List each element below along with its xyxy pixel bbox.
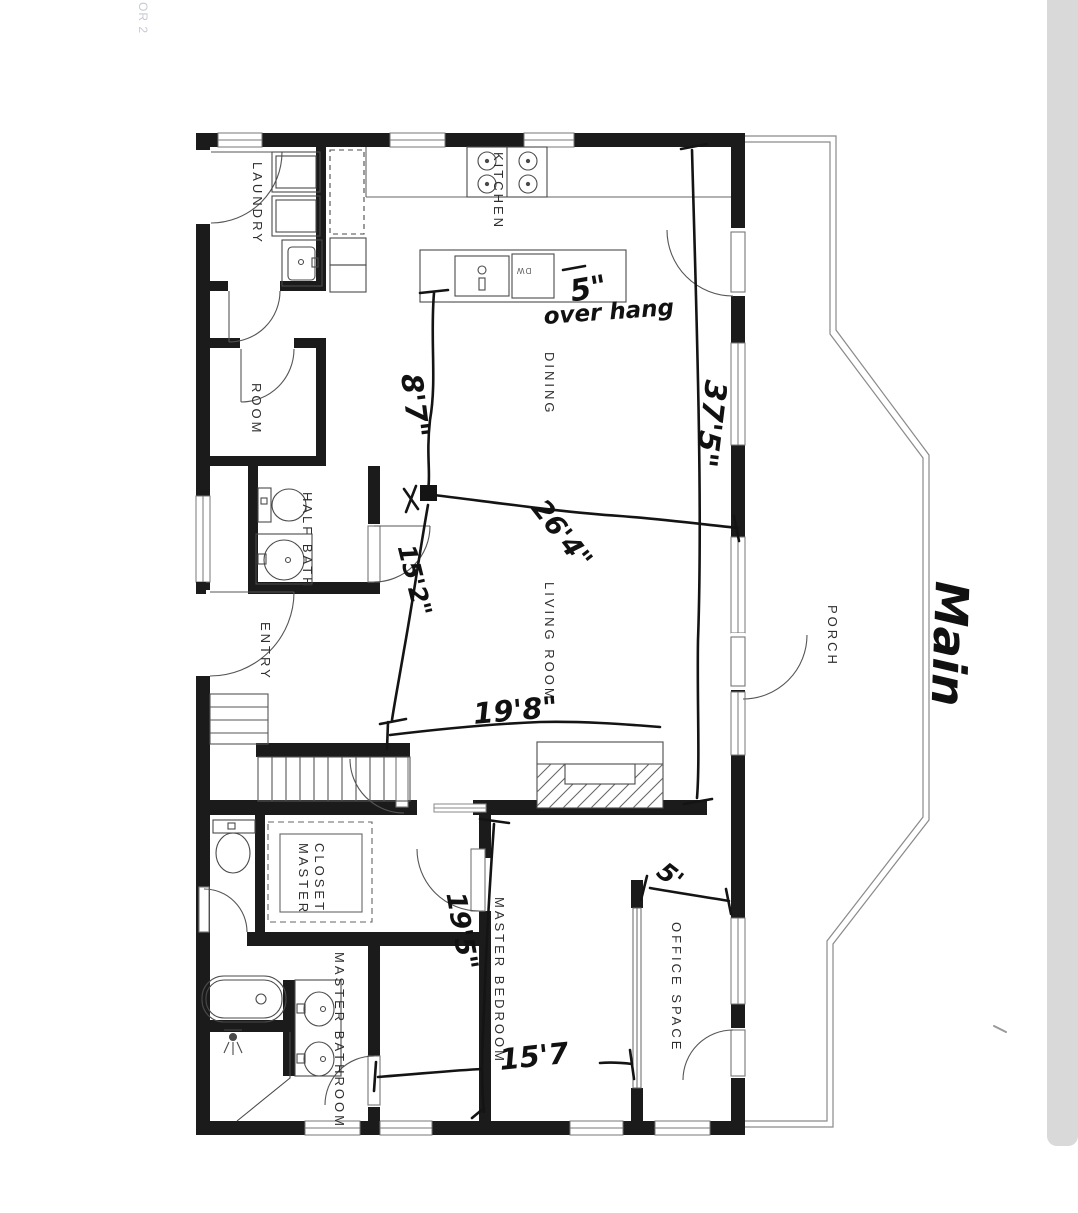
room-label-dining: DINING [542, 352, 557, 416]
office-porch-door [683, 1030, 745, 1080]
dim-line-37-5 [681, 144, 712, 804]
entry-door [210, 592, 294, 676]
dim-post [420, 485, 437, 501]
fixtures [202, 147, 731, 1121]
glazed-divider [633, 908, 641, 1088]
room-label-room: ROOM [249, 383, 264, 435]
dim-text-37-5: 37'5" [690, 378, 730, 468]
dishwasher-label: DW [516, 266, 531, 275]
dining-porch-door [667, 230, 745, 296]
dim-text-8-7: 8'7" [396, 372, 433, 439]
room-label-kitchen: KITCHEN [491, 152, 506, 230]
kitchen-counter [366, 147, 731, 197]
water-closet-toilet-icon [213, 820, 255, 873]
room-label-master-bathroom: MASTER BATHROOM [332, 952, 347, 1129]
stove-icon [467, 147, 547, 197]
dim-text-19-8: 19'8" [472, 693, 559, 729]
refrigerator-dashed-icon [330, 150, 364, 234]
scan-edge-strip [1047, 0, 1078, 1146]
room-label-master-closet-line2: CLOSET [312, 843, 327, 913]
hall-doorway-threshold [434, 804, 486, 812]
pantry-cabinet-icon [330, 238, 366, 292]
fireplace-icon [537, 742, 663, 808]
room-label-laundry: LAUNDRY [250, 162, 265, 245]
plan-title-handwritten: Main [925, 580, 975, 707]
floor-plan-drawing [0, 0, 1078, 1213]
room-label-living-room: LIVING ROOM [542, 582, 557, 702]
shower-icon [224, 1030, 290, 1121]
room-label-half-bath: HALF BATH [300, 492, 315, 590]
water-closet-door [199, 887, 247, 932]
laundry-hall-door [229, 291, 280, 342]
room-label-entry: ENTRY [258, 622, 273, 681]
dim-text-15-7: 15'7 [498, 1039, 570, 1075]
room-label-porch: PORCH [825, 605, 840, 667]
room-label-master-closet-line1: MASTER [296, 843, 311, 915]
washer-dryer-icons [272, 152, 320, 236]
room-label-office-space: OFFICE SPACE [669, 922, 684, 1052]
scanned-floor-plan-page: LAUNDRY KITCHEN DINING ROOM HALF BATH EN… [0, 0, 1078, 1213]
laundry-exterior-door [211, 152, 282, 223]
half-bath-toilet-icon [258, 488, 306, 522]
bathtub-icon [202, 976, 286, 1022]
stray-mark [994, 1026, 1006, 1032]
room-label-master-bedroom: MASTER BEDROOM [492, 897, 507, 1064]
faint-corner-text: OR 2 [136, 2, 150, 34]
